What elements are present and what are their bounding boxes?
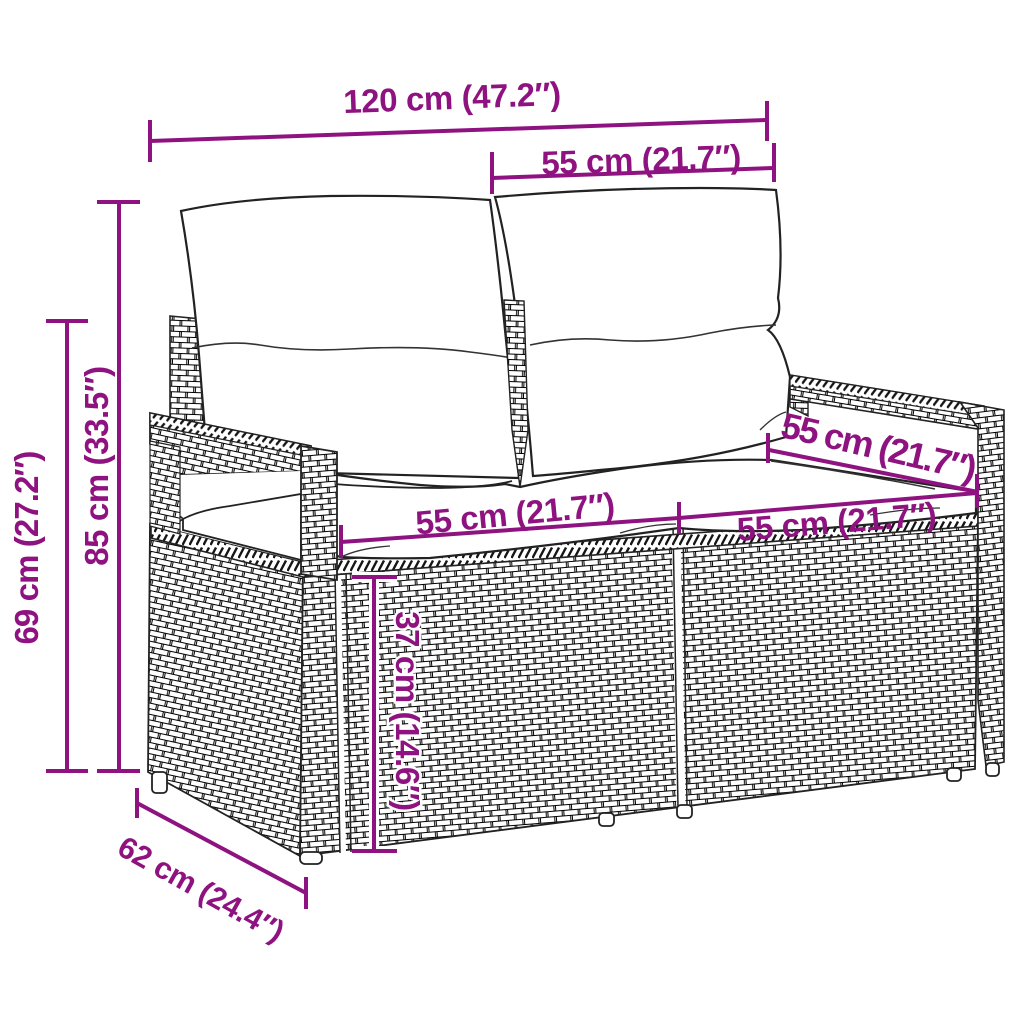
svg-text:85 cm (33.5″): 85 cm (33.5″) xyxy=(78,366,115,566)
svg-text:37 cm (14.6″): 37 cm (14.6″) xyxy=(389,611,426,811)
svg-text:55 cm (21.7″): 55 cm (21.7″) xyxy=(541,138,742,182)
svg-text:69 cm (27.2″): 69 cm (27.2″) xyxy=(8,451,45,644)
